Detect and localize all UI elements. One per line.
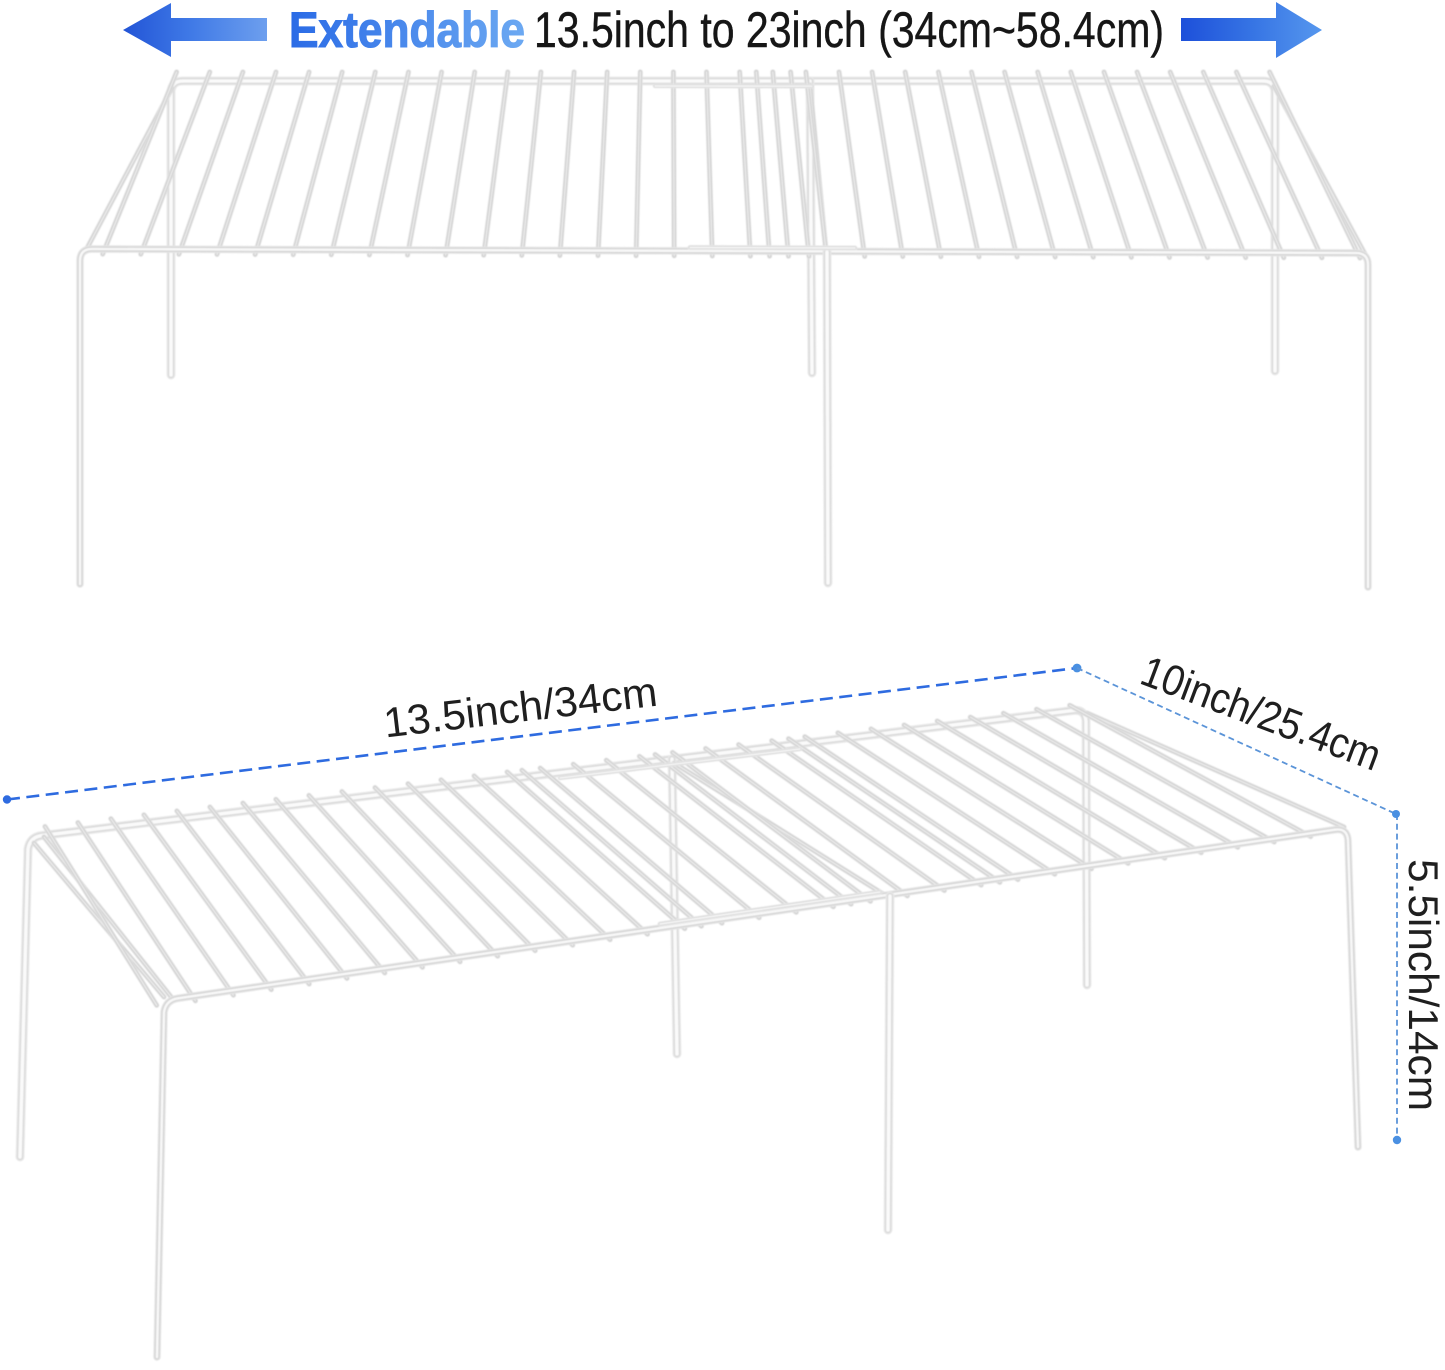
svg-text:Extendable: Extendable [289,2,525,58]
svg-text:5.5inch/14cm: 5.5inch/14cm [1400,859,1445,1111]
svg-text:13.5inch to 23inch (34cm~58.4c: 13.5inch to 23inch (34cm~58.4cm) [534,2,1164,58]
